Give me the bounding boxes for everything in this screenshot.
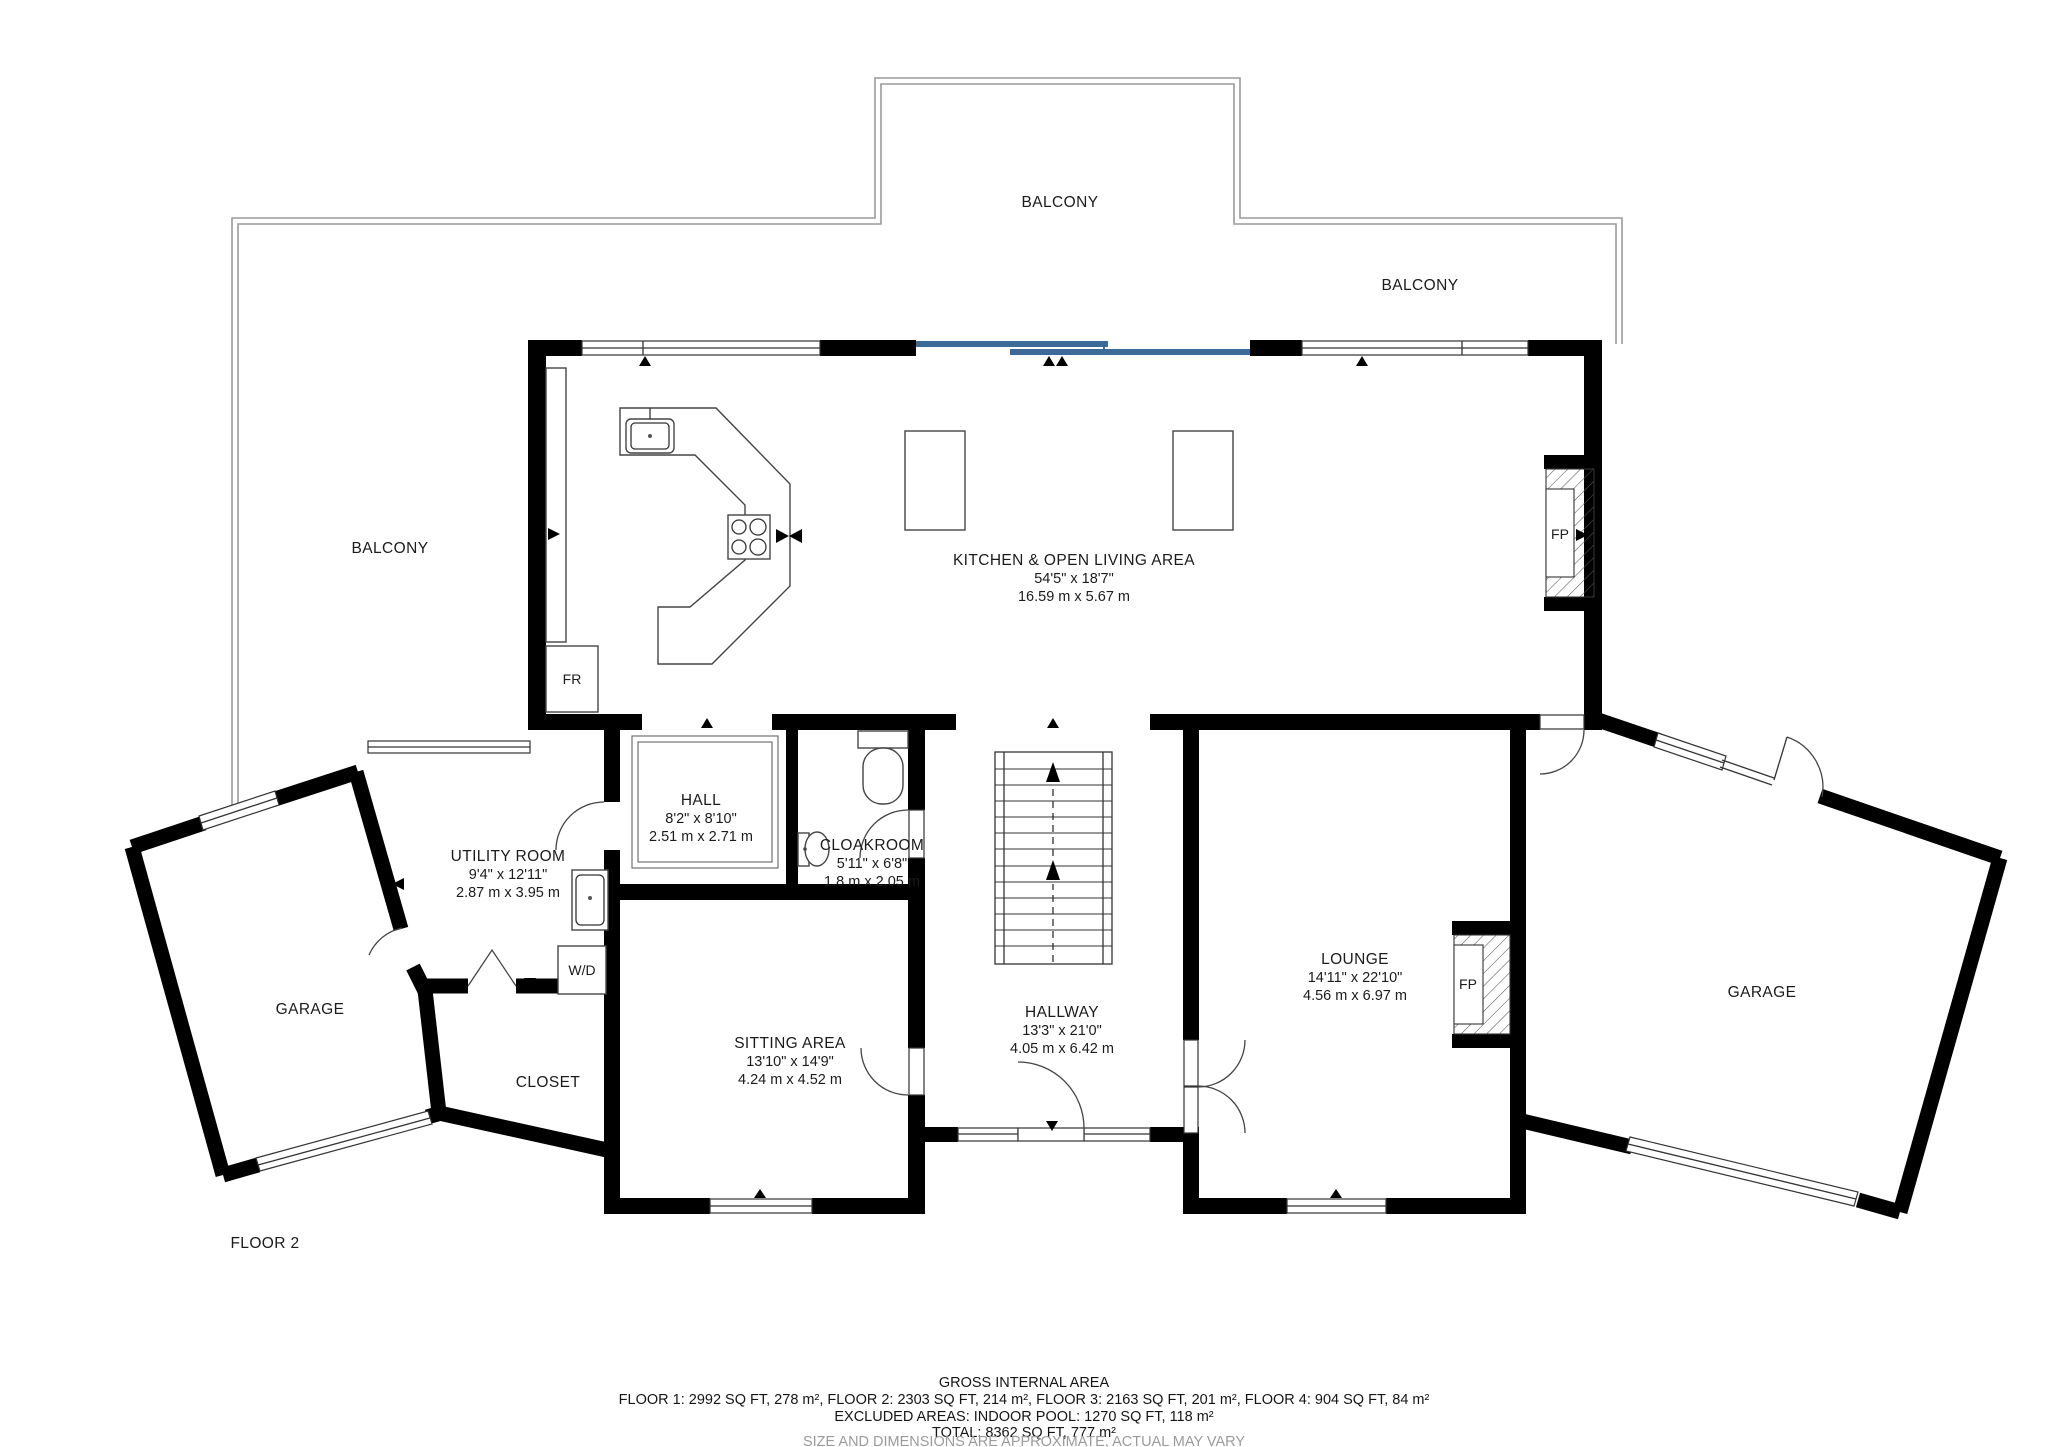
- hall-label: HALL: [681, 792, 721, 809]
- fireplace-kitchen-label: FP: [1551, 526, 1569, 542]
- wall-segment: [1386, 1198, 1526, 1214]
- sitting-label: SITTING AREA: [734, 1035, 846, 1052]
- kitchen-fixtures: [546, 368, 1233, 712]
- fridge-label: FR: [563, 671, 582, 687]
- utility-dims-metric: 2.87 m x 3.95 m: [456, 885, 560, 901]
- kitchen-dims-imperial: 54'5" x 18'7": [1034, 571, 1114, 587]
- wall-segment: [1250, 340, 1302, 356]
- closet-label: CLOSET: [516, 1074, 581, 1091]
- cloakroom-dims-imperial: 5'11" x 6'8": [837, 856, 907, 872]
- sliding-door: [916, 341, 1250, 355]
- wall-segment: [908, 714, 925, 810]
- footer-disclaimer: SIZE AND DIMENSIONS ARE APPROXIMATE, ACT…: [803, 1434, 1245, 1447]
- balcony-left-label: BALCONY: [352, 540, 429, 557]
- door-arc-hall-utility: [556, 802, 604, 850]
- opening-markers: [392, 356, 1588, 1198]
- sitting-dims-imperial: 13'10" x 14'9": [746, 1054, 834, 1070]
- footer-excluded-areas: EXCLUDED AREAS: INDOOR POOL: 1270 SQ FT,…: [834, 1409, 1213, 1425]
- windows-lower: [368, 741, 1386, 1213]
- garage-left-openings: [199, 791, 432, 1171]
- fireplace-lounge-label: FP: [1459, 976, 1477, 992]
- wall-segment: [820, 340, 916, 356]
- hall-dims-metric: 2.51 m x 2.71 m: [649, 829, 753, 845]
- floorplan-canvas: BALCONY BALCONY BALCONY KITCHEN & OPEN L…: [0, 0, 2048, 1447]
- washer-dryer-label: W/D: [568, 962, 595, 978]
- garage-left-label: GARAGE: [276, 1001, 345, 1018]
- lounge-label: LOUNGE: [1321, 951, 1389, 968]
- hall-dims-imperial: 8'2" x 8'10": [665, 811, 736, 827]
- walls-kitchen-block: [528, 340, 1602, 730]
- utility-label: UTILITY ROOM: [451, 848, 566, 865]
- bifold-door-closet: [468, 950, 516, 986]
- wall-segment: [1510, 714, 1526, 1214]
- door-arc-lounge-lower: [1198, 1086, 1245, 1133]
- door-arc-sitting: [861, 1048, 908, 1095]
- hallway-label: HALLWAY: [1025, 1004, 1099, 1021]
- wall-segment: [528, 340, 546, 730]
- wall-segment: [604, 884, 800, 900]
- kitchen-table: [905, 431, 965, 530]
- wall-segment: [772, 714, 956, 730]
- sitting-dims-metric: 4.24 m x 4.52 m: [738, 1072, 842, 1088]
- wall-segment: [786, 714, 798, 900]
- wall-segment: [812, 1198, 925, 1214]
- door-arc-garage-left: [369, 928, 402, 955]
- counter: [546, 368, 566, 642]
- door-arc-lounge-upper: [1198, 1040, 1245, 1087]
- door-leaf: [1540, 715, 1584, 729]
- garage-door-arc: [1787, 737, 1823, 797]
- toilet-bowl: [863, 748, 903, 804]
- walls-garage-right: [1518, 720, 2000, 1212]
- hallway-dims-metric: 4.05 m x 6.42 m: [1010, 1041, 1114, 1057]
- lounge-dims-imperial: 14'11" x 22'10": [1308, 970, 1403, 986]
- garage-right-label: GARAGE: [1728, 984, 1797, 1001]
- door-arc-front: [1018, 1062, 1084, 1128]
- wall-segment: [604, 714, 620, 802]
- floorplan-page: BALCONY BALCONY BALCONY KITCHEN & OPEN L…: [0, 0, 2048, 1447]
- toilet-tank: [858, 731, 908, 748]
- kitchen-table: [1173, 431, 1233, 530]
- door-arc-kitchen-lounge: [1540, 730, 1584, 774]
- front-door-leaf: [1018, 1128, 1084, 1141]
- footer-floor-areas: FLOOR 1: 2992 SQ FT, 278 m², FLOOR 2: 23…: [619, 1392, 1430, 1408]
- wall-segment: [1150, 714, 1540, 730]
- kitchen-label: KITCHEN & OPEN LIVING AREA: [953, 552, 1195, 569]
- stairs: [995, 752, 1112, 964]
- cloakroom-dims-metric: 1.8 m x 2.05 m: [824, 874, 920, 890]
- door-leaf: [909, 1048, 924, 1095]
- footer: GROSS INTERNAL AREA FLOOR 1: 2992 SQ FT,…: [619, 1375, 1430, 1447]
- balcony-right-label: BALCONY: [1382, 277, 1459, 294]
- lounge-dims-metric: 4.56 m x 6.97 m: [1303, 988, 1407, 1004]
- wall-segment: [604, 1198, 710, 1214]
- balcony-top-label: BALCONY: [1022, 194, 1099, 211]
- kitchen-dims-metric: 16.59 m x 5.67 m: [1018, 589, 1130, 605]
- wall-segment: [908, 1095, 925, 1214]
- footer-gross-internal-area: GROSS INTERNAL AREA: [939, 1375, 1110, 1391]
- floor-label: FLOOR 2: [230, 1235, 299, 1252]
- wall-segment: [908, 1127, 958, 1142]
- wall-segment: [1183, 1198, 1287, 1214]
- door-leaf: [1184, 1087, 1198, 1133]
- door-leaf: [1184, 1040, 1198, 1086]
- wall-segment: [528, 714, 642, 730]
- wall-segment: [1183, 714, 1199, 1040]
- utility-dims-imperial: 9'4" x 12'11": [469, 867, 547, 883]
- cloakroom-label: CLOAKROOM: [820, 837, 924, 854]
- walls-garage-left: [132, 772, 607, 1175]
- hallway-dims-imperial: 13'3" x 21'0": [1022, 1023, 1102, 1039]
